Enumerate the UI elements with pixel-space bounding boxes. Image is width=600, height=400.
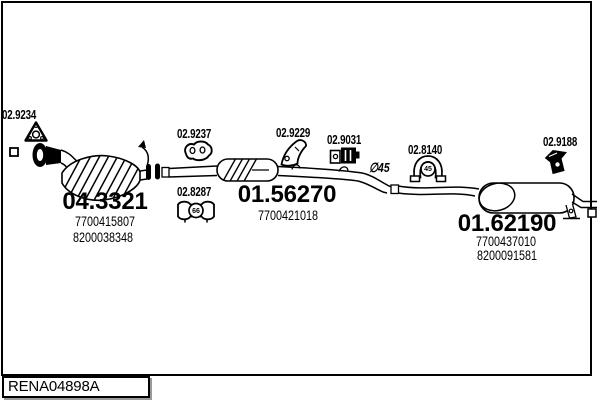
flange-bore <box>37 149 43 161</box>
pipe-line <box>398 193 475 196</box>
oem-number: 8200091581 <box>463 249 551 263</box>
part-code-mid-bracket: 02.9229 <box>276 127 310 140</box>
clamp-45-size-label: 45 <box>421 166 435 173</box>
mid-bracket-icon <box>282 140 307 166</box>
pipe-line <box>362 173 392 187</box>
bracket-hole <box>555 162 559 166</box>
part-code-mid-muffler: 01.56270 <box>232 183 342 207</box>
part-code-gasket: 02.9234 <box>2 109 36 122</box>
part-code-clamp-45: 02.8140 <box>408 144 442 157</box>
mid-muffler-shape <box>217 158 278 183</box>
tail-mount-square <box>588 209 596 217</box>
rear-bracket-icon <box>546 151 567 174</box>
mount-tab <box>356 152 360 159</box>
pipe-line <box>169 166 217 177</box>
flange-cone <box>46 146 61 165</box>
front-flange <box>10 143 61 167</box>
front-joint <box>140 164 217 181</box>
oem-number: 7700415807 <box>61 215 149 229</box>
part-code-clamp-66: 02.8287 <box>177 186 211 199</box>
part-code-rear-bracket: 02.9188 <box>543 136 577 149</box>
tail-bracket <box>566 204 576 218</box>
hanger-rod <box>138 140 148 166</box>
oem-number: 8200038348 <box>59 231 147 245</box>
clamp-feet <box>185 220 207 223</box>
clamp-foot <box>437 176 446 182</box>
oem-number: 7700421018 <box>244 209 332 223</box>
part-code-rear-muffler: 01.62190 <box>452 212 562 236</box>
mount-block <box>341 148 356 164</box>
pipe-line <box>398 186 479 189</box>
drawing-code-box: RENA04898A <box>2 376 150 398</box>
clamp-66-size-label: 66 <box>189 208 203 215</box>
pipe-line <box>278 167 362 174</box>
part-code-catalyst: 04.3321 <box>50 190 160 214</box>
mount-plate <box>331 151 341 164</box>
bracket-horn <box>282 140 307 166</box>
mid-mount-icon <box>331 148 360 164</box>
clamp-foot <box>411 176 420 182</box>
joint-bar <box>155 164 160 180</box>
flange-bolt-square <box>10 148 18 156</box>
part-code-front-hanger: 02.9237 <box>177 128 211 141</box>
rod-line <box>142 147 148 166</box>
exhaust-parts-diagram-page: { "frame": { "code_label": "RENA04898A" … <box>0 0 600 400</box>
oem-number: 7700437010 <box>462 235 550 249</box>
sleeve-joint-square <box>391 185 399 194</box>
hanger-blob <box>185 142 212 161</box>
joint-square <box>162 168 169 178</box>
joint-bar <box>146 164 151 180</box>
tail-strap <box>572 194 597 202</box>
gasket-bore <box>33 131 40 138</box>
pipe-line <box>140 170 147 180</box>
tail-strap <box>572 202 597 208</box>
part-code-mid-mount: 02.9031 <box>327 134 361 147</box>
gasket-icon <box>26 123 47 141</box>
rod-tip <box>138 140 146 148</box>
pipe-diameter-note: ∅45 <box>369 161 390 174</box>
drawing-code: RENA04898A <box>8 378 99 395</box>
mid-pipe <box>278 165 362 181</box>
front-hanger-icon <box>185 142 212 161</box>
